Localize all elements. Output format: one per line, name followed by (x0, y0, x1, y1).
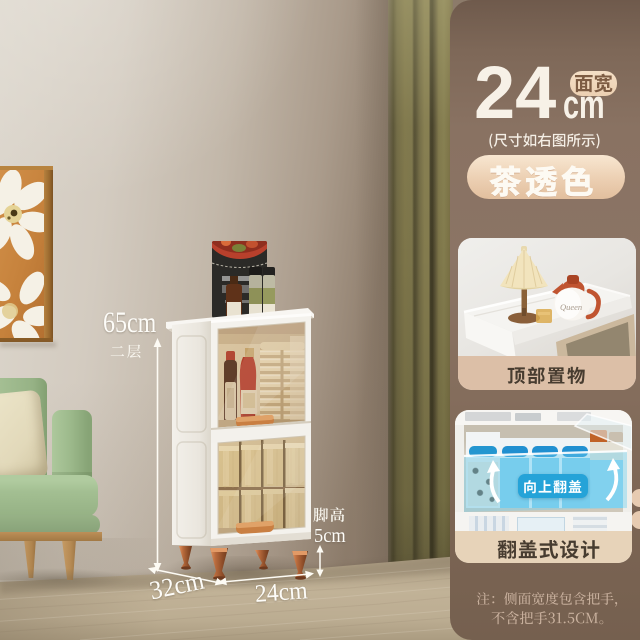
svg-text:Queen: Queen (560, 302, 582, 312)
